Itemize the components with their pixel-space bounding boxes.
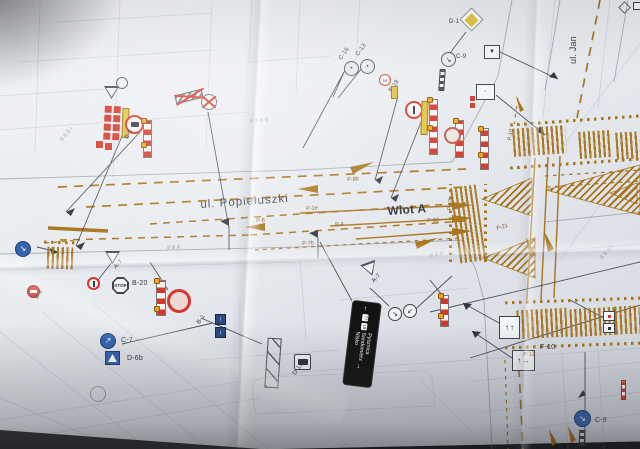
mini-info-sign: ↓ xyxy=(215,327,226,338)
pedestrian-crossing xyxy=(614,305,640,334)
warning-lamp xyxy=(154,278,160,284)
temporary-sign-board xyxy=(391,86,398,99)
priority-road-face xyxy=(464,12,478,26)
marking-label: P-12 xyxy=(523,351,535,358)
barrier-panel-column xyxy=(480,128,489,170)
sign-label: D-1 xyxy=(449,19,459,25)
crossing-sign xyxy=(105,351,120,365)
sign-label: C-9 xyxy=(456,54,466,60)
warning-lamp xyxy=(427,125,433,131)
sign-label: B-20 xyxy=(132,280,148,287)
pictogram-icon: • xyxy=(350,66,352,72)
glyph-bar-icon xyxy=(413,106,416,114)
pedestrian-crossing xyxy=(516,308,567,340)
arrow-icon: ↘ xyxy=(392,310,398,318)
arrow-icon: ↘ xyxy=(20,245,27,253)
small-sign-box xyxy=(603,323,615,333)
stop-sign-face: STOP xyxy=(114,279,128,293)
route-shield: 19 xyxy=(361,323,367,331)
barrier-panel xyxy=(470,96,475,101)
warning-lamp xyxy=(478,152,484,158)
red-dot-icon xyxy=(608,315,611,318)
arrow-icon: ↘ xyxy=(579,415,586,423)
arrow-icon: ↘ xyxy=(446,56,452,64)
pedestrian-crossing xyxy=(512,125,567,157)
dotted-marking-column xyxy=(449,184,452,262)
leader-lines xyxy=(37,32,640,446)
lane-solid-lines xyxy=(300,156,560,300)
arrow-icon: ↓ xyxy=(219,330,222,336)
lane-dashes-long xyxy=(58,0,600,449)
barrier-panel xyxy=(114,106,121,113)
pictogram-icon: • xyxy=(366,64,368,70)
survey-lines-misc xyxy=(0,0,640,430)
sign-label: F-10 xyxy=(540,344,555,351)
prohibition-sign xyxy=(87,277,100,290)
barrier-panel xyxy=(113,115,120,122)
barrier-panel xyxy=(105,106,112,113)
photo-traffic-plan: ul. Popiełuszki Wlot A ul. Jan B-5 xyxy=(0,0,640,449)
warning-lamp xyxy=(453,118,459,124)
dotted-marking-column xyxy=(484,184,487,262)
warning-lamp xyxy=(141,142,147,148)
arrow-down-icon: → xyxy=(355,362,363,370)
warning-lamp xyxy=(141,118,147,124)
sign-label: D-6b xyxy=(127,355,143,362)
arrow-icon: ↗ xyxy=(105,337,112,345)
keep-left-sign: ↙ xyxy=(403,304,417,318)
warning-lamp xyxy=(427,97,433,103)
sign-label: C-7 xyxy=(121,337,133,344)
approach-label: Wlot A xyxy=(387,201,427,218)
arrow-icon: ↑ xyxy=(517,356,521,365)
no-vehicles-sign xyxy=(167,289,191,313)
arrow-icon: ↑ xyxy=(505,323,509,332)
triangle-icon xyxy=(108,354,117,362)
marking-label: P-1e xyxy=(306,205,318,212)
marking-label: P-6 xyxy=(256,218,265,224)
barrier-panel xyxy=(104,115,111,122)
sign-circle-outline xyxy=(116,77,128,89)
barrier-panel xyxy=(96,141,103,148)
pictogram-icon: ◦ xyxy=(484,89,486,95)
warning-lamp xyxy=(438,313,444,319)
route-shield: 77 xyxy=(362,314,368,322)
barrier-panel xyxy=(104,124,111,131)
marking-label: P-7b xyxy=(302,240,314,247)
faded-circle-sign xyxy=(444,127,461,144)
truck-icon xyxy=(131,122,139,127)
limit-value: 10 xyxy=(383,78,387,83)
small-sign-box xyxy=(633,2,640,10)
barrier-panel xyxy=(470,103,475,108)
barrier-panel xyxy=(112,133,119,140)
removed-circle-sign xyxy=(201,94,217,110)
arrow-icon: ↙ xyxy=(407,307,413,315)
stop-line-bar xyxy=(48,228,108,231)
marking-label: P-8d xyxy=(427,217,439,224)
street-label-side: ul. Jan xyxy=(568,36,578,64)
pedestrian-crossing xyxy=(47,247,74,270)
pedestrian-crossing xyxy=(578,130,611,159)
dark-dot-icon xyxy=(608,327,611,330)
arrow-icon: ↑ xyxy=(510,323,514,332)
barrier-panel-column xyxy=(143,120,152,158)
pedestrian-crossing xyxy=(615,131,640,160)
small-sign-box xyxy=(603,311,615,321)
plan-content: ul. Popiełuszki Wlot A ul. Jan B-5 xyxy=(0,0,640,449)
marking-label: P-10 xyxy=(447,198,454,210)
speed-limit-sign: 10 xyxy=(379,74,391,86)
sign-leaders xyxy=(37,32,640,446)
faint-survey-circle xyxy=(90,386,106,402)
lane-usage-sign: ↑↑ xyxy=(499,316,520,339)
barrier-panel xyxy=(103,133,110,140)
warning-lamp xyxy=(154,306,160,312)
red-white-post xyxy=(621,380,626,400)
destination-list: Pysznica Sandomierz Nisko xyxy=(351,331,372,362)
mandatory-direction-sign: ↗ xyxy=(100,333,116,349)
striped-bollard xyxy=(579,430,586,446)
keep-right-sign: ↘ xyxy=(388,307,402,321)
plan-linework xyxy=(0,0,640,449)
pictogram-icon: ▼ xyxy=(489,49,495,55)
zone-sign: • xyxy=(360,59,375,74)
survey-lines-topleft xyxy=(0,0,360,178)
barrier-panel-column xyxy=(440,295,449,327)
arrow-icon: ↑ xyxy=(219,317,222,323)
barrier-panel-grid xyxy=(103,106,122,142)
small-sign-box: ▼ xyxy=(484,45,500,59)
keep-right-sign: ↘ xyxy=(574,410,591,427)
barrier-panel xyxy=(105,143,112,150)
marking-label: P-4 xyxy=(335,222,344,228)
zone-sign: • xyxy=(344,61,359,76)
warning-lamp xyxy=(438,293,444,299)
mini-info-sign: ↑ xyxy=(215,314,226,325)
marking-label: P-8b xyxy=(347,176,359,183)
glyph-bar-icon xyxy=(93,281,95,287)
warning-lamp xyxy=(478,126,484,132)
sign-label: C-9 xyxy=(595,417,607,424)
keep-right-sign: ↘ xyxy=(441,52,456,67)
small-sign-box: ◦ xyxy=(476,84,495,100)
arrow-up-icon: ← xyxy=(362,305,370,313)
mandatory-direction-sign: ↘ xyxy=(15,241,31,257)
barrier-panel xyxy=(113,124,120,131)
